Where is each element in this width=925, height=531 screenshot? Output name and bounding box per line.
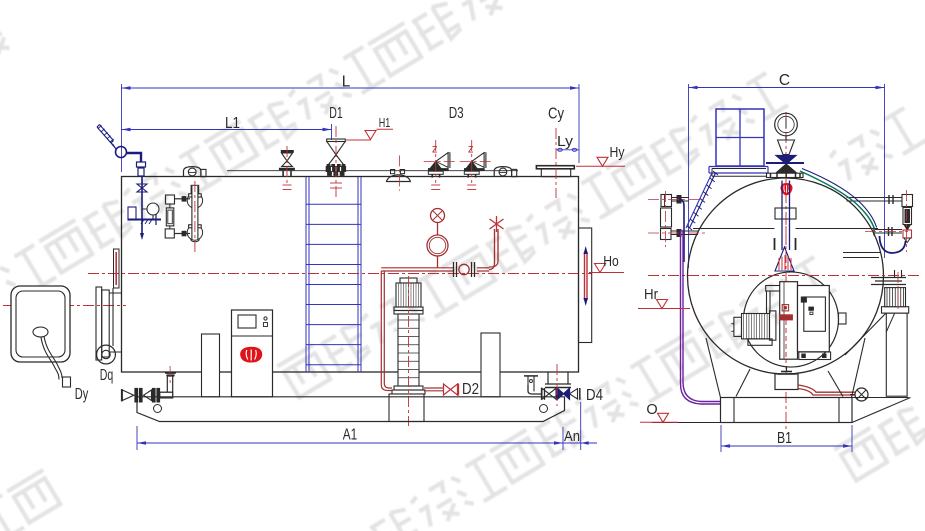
svg-text:C: C [779, 72, 790, 89]
svg-text:B1: B1 [777, 430, 792, 447]
svg-text:Dy: Dy [75, 386, 89, 403]
svg-text:H1: H1 [379, 116, 391, 130]
svg-text:Hy: Hy [610, 145, 626, 161]
svg-text:Hr: Hr [644, 287, 658, 303]
svg-text:Ly: Ly [557, 134, 574, 150]
svg-text:O: O [646, 402, 657, 418]
svg-text:D2: D2 [462, 381, 479, 398]
svg-text:Cy: Cy [548, 106, 564, 123]
svg-text:Ho: Ho [603, 254, 619, 270]
svg-text:D1: D1 [329, 105, 343, 122]
svg-text:D3: D3 [449, 105, 464, 122]
svg-text:z: z [432, 144, 438, 156]
svg-text:L1: L1 [225, 115, 240, 132]
svg-text:Dq: Dq [100, 367, 114, 384]
svg-text:z: z [468, 144, 474, 156]
svg-text:A1: A1 [343, 427, 358, 444]
svg-text:D4: D4 [586, 387, 603, 404]
svg-text:An: An [564, 428, 580, 445]
svg-text:L: L [342, 74, 351, 91]
